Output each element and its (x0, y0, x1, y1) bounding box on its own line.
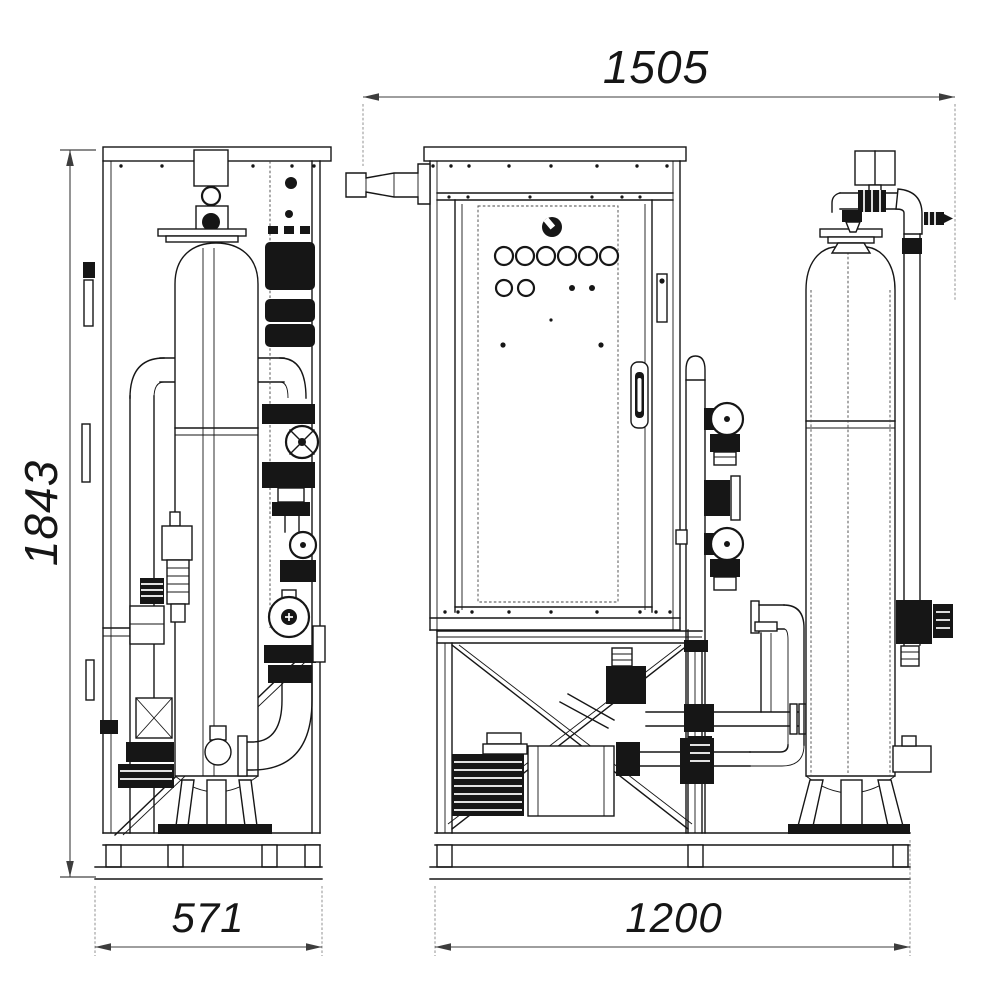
side-door-handle (82, 424, 90, 482)
terminal-block (265, 299, 315, 322)
tank-center-post (207, 780, 226, 826)
tank-drain-cap (210, 726, 226, 740)
dimension-label-overall-width: 1505 (603, 41, 709, 93)
mounting-bracket (313, 626, 325, 662)
junction-box (130, 606, 164, 644)
main-switch (542, 217, 562, 237)
standpipe-cap (686, 356, 705, 380)
tank-drain-ball (205, 739, 231, 765)
side-door-hinge (84, 280, 93, 326)
pump-motor-cap (487, 733, 521, 744)
indicator-light (579, 247, 597, 265)
tank-flange (158, 229, 246, 236)
front-cabinet-cap (424, 147, 686, 161)
side-wall-bracket (83, 262, 95, 278)
side-valve (162, 526, 192, 560)
technical-drawing: 1505 1843 571 1200 (0, 0, 1000, 1000)
panel-knob (285, 177, 297, 189)
push-button (518, 280, 534, 296)
tank-skirt (798, 780, 903, 826)
cable-gland-block (265, 242, 315, 290)
hose-barb (140, 578, 164, 604)
indicator-light (558, 247, 576, 265)
solenoid-box (194, 150, 228, 186)
pump-motor (452, 754, 524, 816)
tank-side-box (893, 746, 931, 772)
indicator-light (495, 247, 513, 265)
sampling-valve (704, 476, 740, 520)
dimension-label-overall-height: 1843 (15, 460, 67, 566)
indicator-light (537, 247, 555, 265)
pump-coupling (616, 742, 640, 776)
dimension-label-side-depth: 571 (171, 894, 244, 941)
pump-body (528, 746, 614, 816)
push-button (496, 280, 512, 296)
pump-valve-stem (612, 648, 632, 666)
pump-valve (606, 666, 646, 704)
dimension-label-base-width: 1200 (625, 894, 722, 941)
technical-drawing-page: 1505 1843 571 1200 (0, 0, 1000, 1000)
door-handle (631, 362, 648, 428)
indicator-light (600, 247, 618, 265)
indicator-light (516, 247, 534, 265)
standpipe-tee (684, 704, 714, 732)
threaded-fitting (167, 560, 189, 604)
